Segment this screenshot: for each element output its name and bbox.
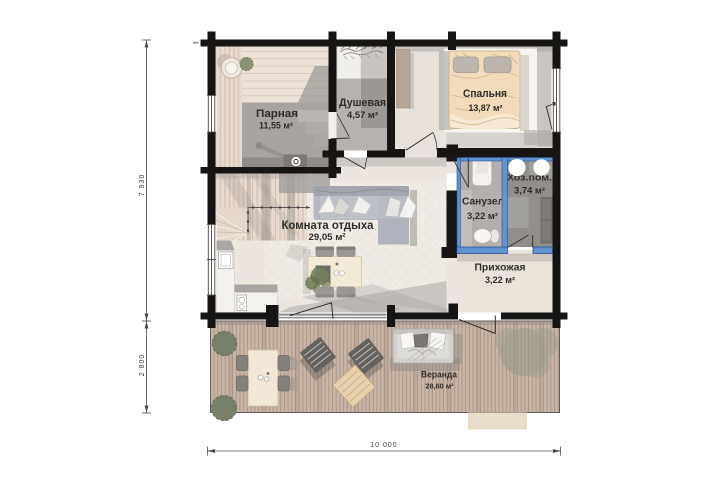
svg-text:3,22 м²: 3,22 м² <box>485 275 515 285</box>
svg-text:Спальня: Спальня <box>463 88 507 100</box>
svg-text:4,57 м²: 4,57 м² <box>347 110 378 120</box>
svg-text:3,74 м²: 3,74 м² <box>514 186 545 196</box>
svg-text:28,60 м²: 28,60 м² <box>426 382 454 391</box>
svg-text:Душевая: Душевая <box>339 97 386 109</box>
svg-text:Санузел: Санузел <box>462 197 504 208</box>
svg-text:Прихожая: Прихожая <box>475 262 526 274</box>
svg-text:Веранда: Веранда <box>421 370 458 381</box>
svg-text:11,55 м²: 11,55 м² <box>259 121 293 131</box>
svg-text:13,87 м²: 13,87 м² <box>469 103 503 113</box>
svg-text:2 800: 2 800 <box>139 354 146 377</box>
svg-text:Комната отдыха: Комната отдыха <box>282 220 375 232</box>
svg-text:3,22 м²: 3,22 м² <box>467 211 498 221</box>
svg-text:10 000: 10 000 <box>370 442 397 449</box>
svg-text:29,05 м²: 29,05 м² <box>309 232 346 243</box>
svg-text:Парная: Парная <box>256 108 298 120</box>
svg-text:7 930: 7 930 <box>139 174 146 197</box>
